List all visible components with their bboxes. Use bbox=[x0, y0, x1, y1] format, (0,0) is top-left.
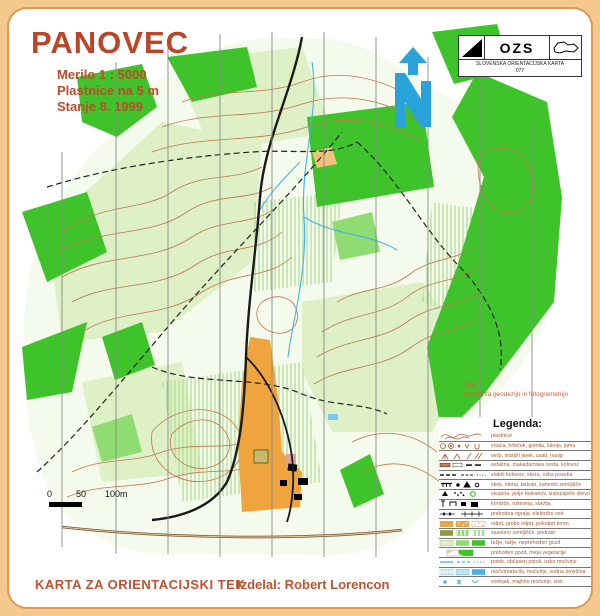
legend-label: močvirnata tla, močvirje, vodna površina bbox=[491, 569, 586, 575]
legend-label: skok, stena, balvan, kamnito zemljišče bbox=[491, 482, 581, 488]
legend-row: zasebno zemljišče, podrast bbox=[439, 529, 593, 539]
map-subtitles: Merilo 1 : 5000 Plastnice na 5 m Stanje … bbox=[57, 67, 159, 115]
legend-label: težje, lažje, neprehoden gozd bbox=[491, 540, 560, 546]
legend-symbol-streams bbox=[439, 558, 491, 566]
ozs-logo-box: OZS SLOVENSKA ORIENTACIJSKA KARTA 077 bbox=[458, 35, 582, 77]
legend-label: prehodna ograja, električni vod bbox=[491, 511, 563, 517]
map-title: PANOVEC bbox=[31, 25, 189, 61]
print-credit: Tisk: Inštitut za geodezijo in fotograme… bbox=[464, 381, 568, 399]
legend-title: Legenda: bbox=[439, 418, 593, 430]
scale-line: Merilo 1 : 5000 bbox=[57, 67, 159, 83]
page: { "header": { "title": "PANOVEC", "subti… bbox=[0, 0, 600, 616]
scale-segment-black bbox=[49, 502, 82, 507]
legend-row: večji, manjši jarek, usad, nasip bbox=[439, 451, 593, 461]
logo-caption-line1: SLOVENSKA ORIENTACIJSKA KARTA bbox=[459, 61, 581, 68]
legend-row: težje, lažje, neprehoden gozd bbox=[439, 539, 593, 549]
legend-label: vodnjak, majhno močvirje, izvir bbox=[491, 579, 563, 585]
legend-label: odprt, grobo odprt, polodprt teren bbox=[491, 521, 569, 527]
cultivated-plot bbox=[254, 450, 268, 463]
north-arrow bbox=[389, 47, 437, 135]
legend-row: prehodna ograja, električni vod bbox=[439, 510, 593, 520]
legend-symbol-open-forest-veg-boundary bbox=[439, 549, 491, 557]
legend-symbol-well-spring bbox=[439, 578, 491, 586]
scale-label-100: 100m bbox=[105, 489, 128, 499]
legend-symbol-gully-erosion bbox=[439, 452, 491, 460]
legend-symbol-roads bbox=[439, 461, 491, 469]
logo-caption: SLOVENSKA ORIENTACIJSKA KARTA 077 bbox=[459, 60, 581, 75]
legend-symbol-cliff-boulder-stony bbox=[439, 481, 491, 489]
ozs-label: OZS bbox=[485, 36, 549, 59]
legend-label: asfaltna, makadamska cesta, kolovoz bbox=[491, 462, 579, 468]
slovenia-outline-icon bbox=[549, 36, 581, 59]
legend-row: asfaltna, makadamska cesta, kolovoz bbox=[439, 461, 593, 471]
survey-date-line: Stanje 8. 1999 bbox=[57, 99, 159, 115]
map-sheet-card: PANOVEC Merilo 1 : 5000 Plastnice na 5 m… bbox=[7, 7, 593, 609]
scale-label-50: 50 bbox=[76, 489, 86, 499]
legend-row: odprt, grobo odprt, polodprt teren bbox=[439, 519, 593, 529]
legend-label: skupina, polje balvanov, izstopajoče dre… bbox=[491, 491, 590, 497]
legend-symbol-forest-runability bbox=[439, 539, 491, 547]
legend-row: potok, občasen potok, ozko močvirje bbox=[439, 558, 593, 568]
map-type-label: KARTA ZA ORIENTACIJSKI TEK bbox=[35, 577, 245, 592]
legend-symbol-contours bbox=[439, 432, 491, 440]
orienteering-flag-icon bbox=[459, 36, 485, 59]
legend-label: zasebno zemljišče, podrast bbox=[491, 530, 555, 536]
logo-caption-line2: 077 bbox=[459, 68, 581, 75]
legend-label: plastnice bbox=[491, 433, 512, 439]
legend-symbol-feeder-ruin-building bbox=[439, 500, 491, 508]
contour-interval-line: Plastnice na 5 m bbox=[57, 83, 159, 99]
legend-symbol-open-terrain bbox=[439, 520, 491, 528]
north-arrow-icon bbox=[389, 47, 437, 135]
legend-label: slabši kolovoz, steza, ozka poseka bbox=[491, 472, 572, 478]
legend-row: skupina, polje balvanov, izstopajoče dre… bbox=[439, 490, 593, 500]
scale-label-0: 0 bbox=[47, 489, 52, 499]
legend-symbol-private-undergrowth bbox=[439, 529, 491, 537]
legend-row: vodnjak, majhno močvirje, izvir bbox=[439, 577, 593, 587]
legend-row: močvirnata tla, močvirje, vodna površina bbox=[439, 568, 593, 578]
legend-label: potok, občasen potok, ozko močvirje bbox=[491, 559, 577, 565]
scale-bar: 0 50 100m bbox=[43, 489, 153, 519]
legend-row: prehoden gozd, meja vegetacije bbox=[439, 548, 593, 558]
pond bbox=[328, 414, 338, 420]
print-credit-value: Inštitut za geodezijo in fotogrametrijo bbox=[464, 390, 568, 399]
legend-label: večji, manjši jarek, usad, nasip bbox=[491, 453, 563, 459]
legend-symbol-boulder-field-tree bbox=[439, 490, 491, 498]
legend-row: slabši kolovoz, steza, ozka poseka bbox=[439, 471, 593, 481]
legend-label: prehoden gozd, meja vegetacije bbox=[491, 550, 566, 556]
legend-symbol-marsh-water bbox=[439, 568, 491, 576]
logo-top-row: OZS bbox=[459, 36, 581, 60]
legend-label: krmišče, ruševina, stavba bbox=[491, 501, 551, 507]
legend-box: Legenda: plastnice vrtača, hribček, gomi… bbox=[439, 417, 593, 579]
author-credit: Izdelal: Robert Lorencon bbox=[237, 577, 389, 592]
legend-row: skok, stena, balvan, kamnito zemljišče bbox=[439, 480, 593, 490]
legend-label: vrtača, hribček, gomila, luknja, jama bbox=[491, 443, 575, 449]
legend-row: vrtača, hribček, gomila, luknja, jama bbox=[439, 442, 593, 452]
print-credit-label: Tisk: bbox=[464, 381, 568, 390]
legend-symbol-fence-powerline bbox=[439, 510, 491, 518]
legend-row: plastnice bbox=[439, 432, 593, 442]
legend-symbol-paths bbox=[439, 471, 491, 479]
legend-row: krmišče, ruševina, stavba bbox=[439, 500, 593, 510]
legend-symbol-depression-knoll-pit bbox=[439, 442, 491, 450]
